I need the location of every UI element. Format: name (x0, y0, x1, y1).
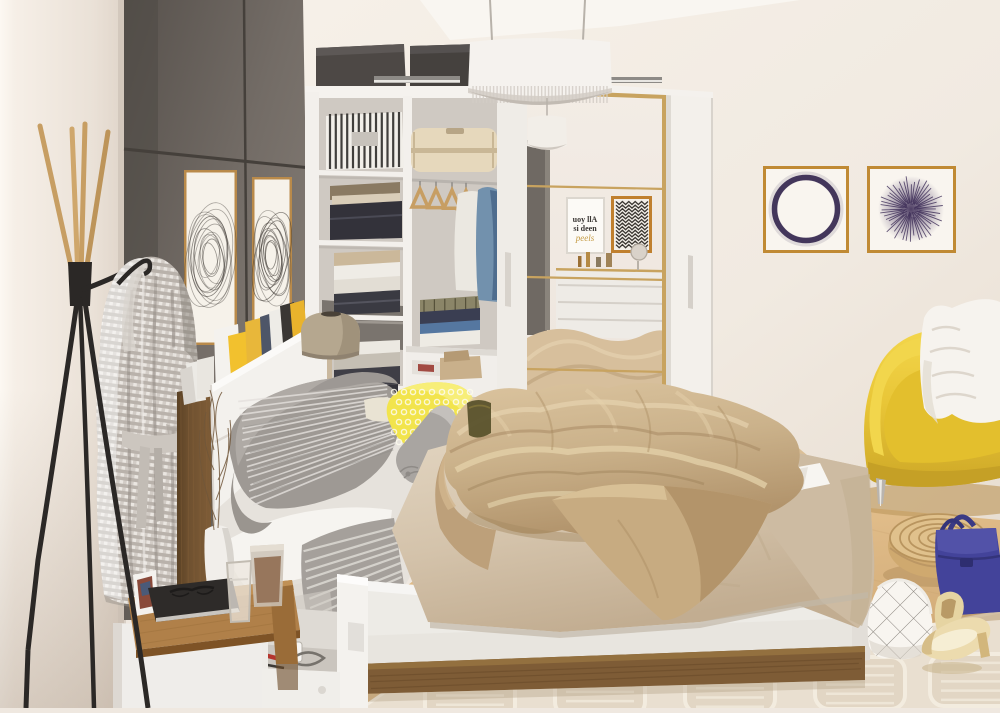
svg-text:peels: peels (575, 233, 595, 243)
svg-text:si deen: si deen (573, 224, 597, 233)
svg-text:uoy llA: uoy llA (573, 215, 598, 224)
